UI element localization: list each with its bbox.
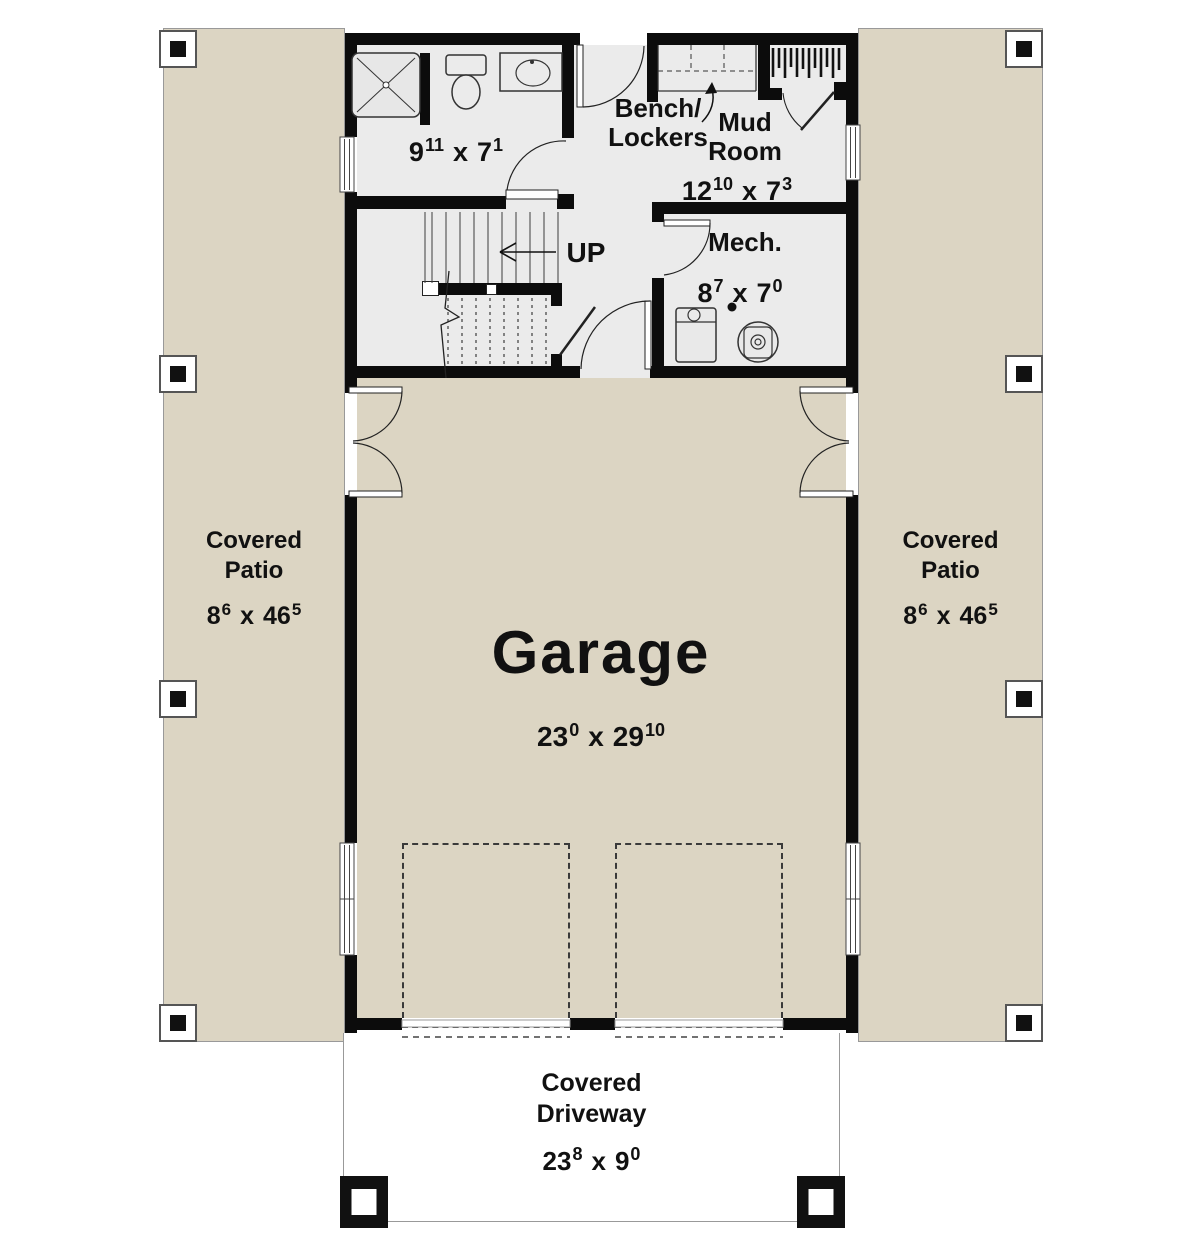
mud-room-label: Mud Room: [695, 108, 795, 166]
covered-patio-right-dimension: 86x465: [858, 596, 1043, 630]
bench-lockers-fixture: [658, 45, 756, 91]
driveway-post: [797, 1176, 845, 1228]
sink-fixture: [500, 53, 562, 91]
garage-door-panel: [402, 1020, 783, 1027]
garage-label: Garage: [400, 622, 802, 684]
covered-patio-right-label: Covered Patio: [858, 526, 1043, 586]
driveway-post: [340, 1176, 388, 1228]
covered-patio-left-dimension: 86x465: [163, 596, 345, 630]
window: [846, 843, 860, 955]
stairs-lower: [448, 298, 546, 364]
patio-post: [1005, 355, 1043, 393]
patio-double-door-left: [349, 387, 402, 497]
water-heater-fixture: [738, 322, 778, 362]
garage-dimension: 230x2910: [451, 716, 751, 751]
patio-post: [159, 1004, 197, 1042]
up-arrow: [500, 243, 556, 261]
bathroom-dimension: 911x71: [396, 131, 516, 166]
toilet-fixture: [446, 55, 486, 109]
covered-driveway-dimension: 238x90: [343, 1140, 840, 1175]
window: [846, 125, 860, 180]
patio-post: [159, 355, 197, 393]
patio-post: [1005, 1004, 1043, 1042]
patio-post: [1005, 30, 1043, 68]
bench-pointer-arrowhead: [705, 82, 717, 94]
shower-fixture: [352, 53, 420, 117]
covered-driveway-label: Covered Driveway: [343, 1068, 840, 1130]
covered-patio-left-label: Covered Patio: [163, 526, 345, 586]
patio-post: [159, 680, 197, 718]
patio-post: [159, 30, 197, 68]
stairs: [425, 212, 558, 283]
furnace-fixture: [676, 308, 716, 362]
up-label: UP: [560, 238, 612, 267]
mud-room-dimension: 1210x73: [672, 170, 802, 205]
window: [340, 843, 354, 955]
patio-double-door-right: [800, 387, 853, 497]
understair-door: [560, 307, 595, 355]
floor-plan: 911x71 Bench/ Lockers Mud Room 1210x73 U…: [0, 0, 1200, 1260]
mech-room-dimension: 87x70: [685, 272, 795, 307]
stair-break-line: [441, 271, 459, 378]
window: [340, 137, 354, 192]
mech-room-label: Mech.: [690, 228, 800, 257]
patio-post: [1005, 680, 1043, 718]
closet-rod-hatch: [773, 48, 839, 78]
